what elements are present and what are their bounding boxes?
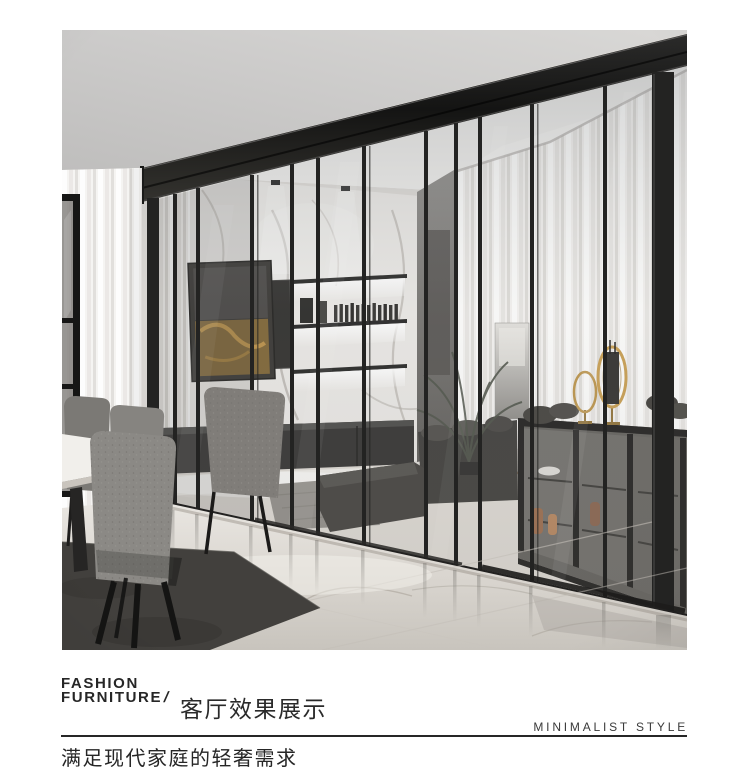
divider-line (61, 735, 687, 737)
living-room-photo-art (62, 30, 687, 650)
section-title: 客厅效果展示 (180, 690, 327, 724)
style-label: MINIMALIST STYLE (533, 720, 688, 734)
brand-line2-row: FURNITURE/ (61, 691, 170, 705)
page: FASHION FURNITURE/ 客厅效果展示 MINIMALIST STY… (0, 0, 750, 778)
living-room-photo (62, 30, 687, 650)
brand-line2: FURNITURE (61, 689, 162, 706)
brand-slash: / (162, 691, 171, 705)
caption-section: FASHION FURNITURE/ 客厅效果展示 MINIMALIST STY… (0, 650, 750, 778)
subtitle: 满足现代家庭的轻奢需求 (61, 742, 298, 771)
photo-vignette (62, 30, 687, 650)
brand-logo: FASHION FURNITURE/ (61, 677, 170, 705)
